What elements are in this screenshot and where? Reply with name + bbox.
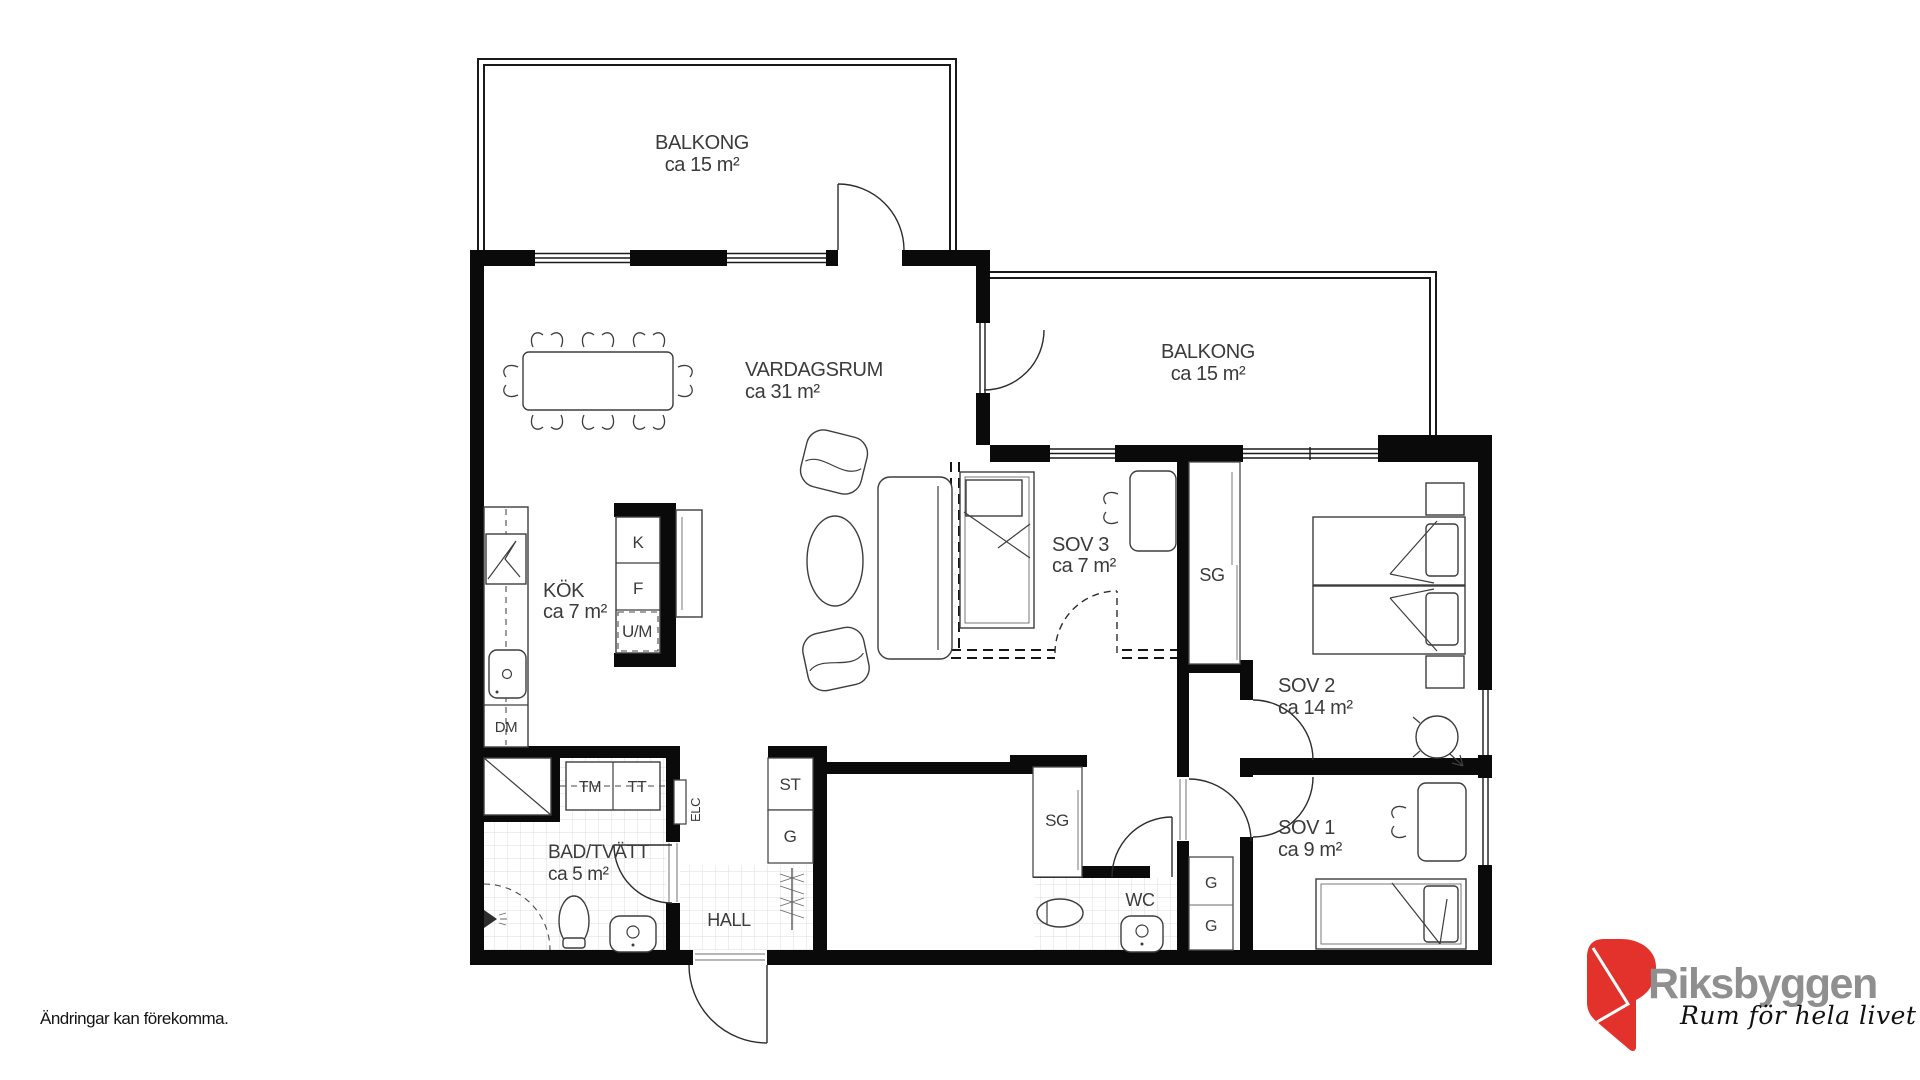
desk-sov1 (1418, 783, 1466, 861)
label-balcony-right: BALKONG (1161, 341, 1255, 363)
label-hall-wardrobe: G (784, 827, 797, 846)
label-bath-area: ca 5 m² (548, 864, 609, 885)
label-hall-sliding: SG (1045, 811, 1069, 830)
bed-sov3 (960, 472, 1034, 628)
label-bath: BAD/TVÄTT (548, 842, 650, 863)
basin-bath (610, 916, 656, 952)
desk-chair-sov3 (1104, 492, 1118, 523)
logo-tagline: Rum för hela livet (1679, 1001, 1917, 1030)
label-bedroom3-area: ca 7 m² (1052, 555, 1117, 577)
label-wc: WC (1125, 890, 1155, 910)
entry-door (689, 950, 767, 1043)
floorplan-page: BALKONG ca 15 m² BALKONG ca 15 m² VARDAG… (0, 0, 1920, 1080)
label-balcony-top: BALKONG (655, 132, 749, 154)
label-wardrobe-upper: G (1205, 875, 1217, 892)
nightstand-lower (1426, 656, 1464, 688)
label-electrical: ELC (688, 798, 703, 822)
nightstand-upper (1426, 483, 1464, 515)
corridor-opening (1180, 779, 1251, 841)
stove (486, 534, 526, 584)
bedroom3-window (1050, 445, 1115, 462)
label-living: VARDAGSRUM (745, 359, 883, 381)
label-bedroom-sliding: SG (1199, 565, 1224, 585)
desk-sov3 (1130, 471, 1176, 551)
label-bedroom3: SOV 3 (1052, 534, 1109, 556)
desk-chair-sov1 (1392, 806, 1406, 837)
electrical-cabinet (674, 780, 686, 824)
east-window-sov2 (1478, 690, 1494, 755)
kitchen-bench (676, 510, 702, 617)
armchair-top (797, 426, 871, 497)
living-window-1 (535, 250, 630, 266)
bed-sov2-lower (1313, 586, 1465, 654)
shower-cabinet (484, 758, 551, 815)
label-washer: TM (579, 779, 601, 796)
dining-table (523, 352, 673, 410)
washer-dryer (560, 762, 666, 810)
label-bedroom1-area: ca 9 m² (1278, 839, 1343, 861)
basin-wc (1121, 916, 1163, 952)
label-living-area: ca 31 m² (745, 381, 820, 403)
label-bedroom1: SOV 1 (1278, 817, 1335, 839)
label-fridge: K (633, 533, 645, 552)
balcony-right-door (984, 330, 1044, 390)
bedroom-sliding-sg (1189, 462, 1240, 664)
riksbyggen-logo: Riksbyggen Rum för hela livet (1587, 939, 1917, 1051)
bedroom3-door (1055, 591, 1117, 653)
label-hall: HALL (707, 910, 751, 930)
kitchen-sink (489, 650, 526, 698)
toilet-bath (559, 896, 589, 948)
balcony-top-door (838, 184, 904, 250)
toilet-wc (1037, 899, 1083, 927)
east-window-sov1 (1478, 778, 1494, 865)
balcony-door-panel (976, 323, 990, 393)
living-furniture (504, 333, 952, 694)
floorplan-drawing: BALKONG ca 15 m² BALKONG ca 15 m² VARDAG… (0, 0, 1920, 1080)
living-window-2 (727, 250, 826, 266)
label-kitchen-area: ca 7 m² (543, 601, 608, 623)
bed-sov2-upper (1313, 517, 1465, 585)
label-freezer: F (633, 579, 643, 598)
bedroom2-furniture (1313, 483, 1465, 766)
label-dishwasher: DM (495, 719, 518, 736)
label-kitchen: KÖK (543, 580, 585, 602)
bedroom2-window (1243, 445, 1378, 462)
label-balcony-right-area: ca 15 m² (1171, 363, 1246, 385)
disclaimer-text: Ändringar kan förekomma. (40, 1009, 228, 1028)
coffee-table (807, 516, 863, 606)
bed-sov1 (1316, 879, 1466, 949)
label-balcony-top-area: ca 15 m² (665, 154, 740, 176)
label-dryer: TT (628, 779, 647, 796)
label-wardrobe-lower: G (1205, 918, 1217, 935)
label-bedroom2-area: ca 14 m² (1278, 697, 1353, 719)
label-cleaning-closet: ST (780, 775, 801, 794)
riksbyggen-logo-icon (1587, 939, 1656, 1051)
wardrobes-gg (1189, 857, 1233, 950)
label-oven-micro: U/M (622, 622, 652, 641)
sofa (878, 477, 952, 659)
label-bedroom2: SOV 2 (1278, 675, 1335, 697)
bedroom1-furniture (1316, 783, 1466, 949)
armchair-bottom (800, 624, 873, 694)
